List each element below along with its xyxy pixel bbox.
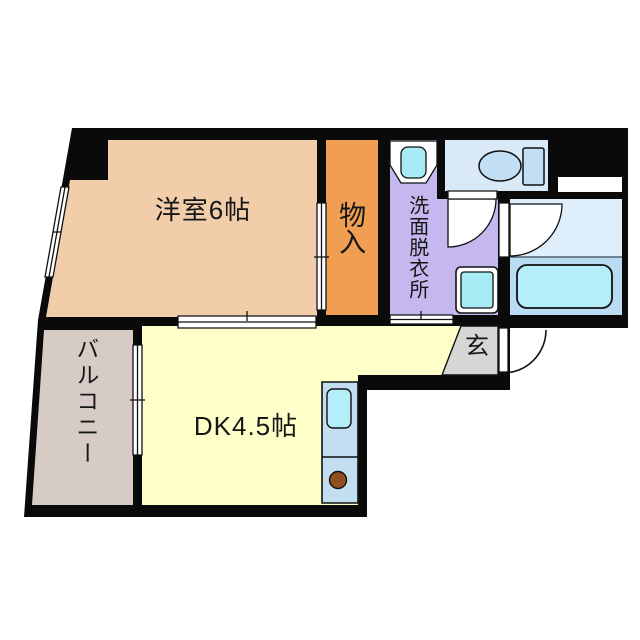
bath-door-leaf	[499, 203, 509, 257]
entrance-door-leaf	[499, 328, 508, 372]
bathtub	[517, 265, 612, 308]
label-monoire: 物入	[336, 201, 364, 255]
label-genkan: 玄	[462, 335, 492, 360]
floor-plan-canvas: 洋室6帖 物入 洗面脱衣所 玄 DK4.5帖 バルコニー	[0, 0, 640, 640]
label-senmen: 洗面脱衣所	[406, 195, 427, 300]
toilet-bowl	[479, 151, 521, 181]
wash-basin	[401, 147, 426, 178]
label-dk: DK4.5帖	[156, 413, 336, 440]
toilet-door-leaf	[448, 191, 497, 199]
label-balcony: バルコニー	[73, 337, 97, 467]
stove-burner	[330, 472, 347, 489]
washing-machine-pan-inner	[461, 272, 493, 308]
toilet-tank	[523, 148, 544, 185]
label-yoshitsu: 洋室6帖	[138, 197, 268, 224]
floor-plan-drawing	[0, 0, 640, 640]
pipe-space-notch	[558, 177, 622, 192]
